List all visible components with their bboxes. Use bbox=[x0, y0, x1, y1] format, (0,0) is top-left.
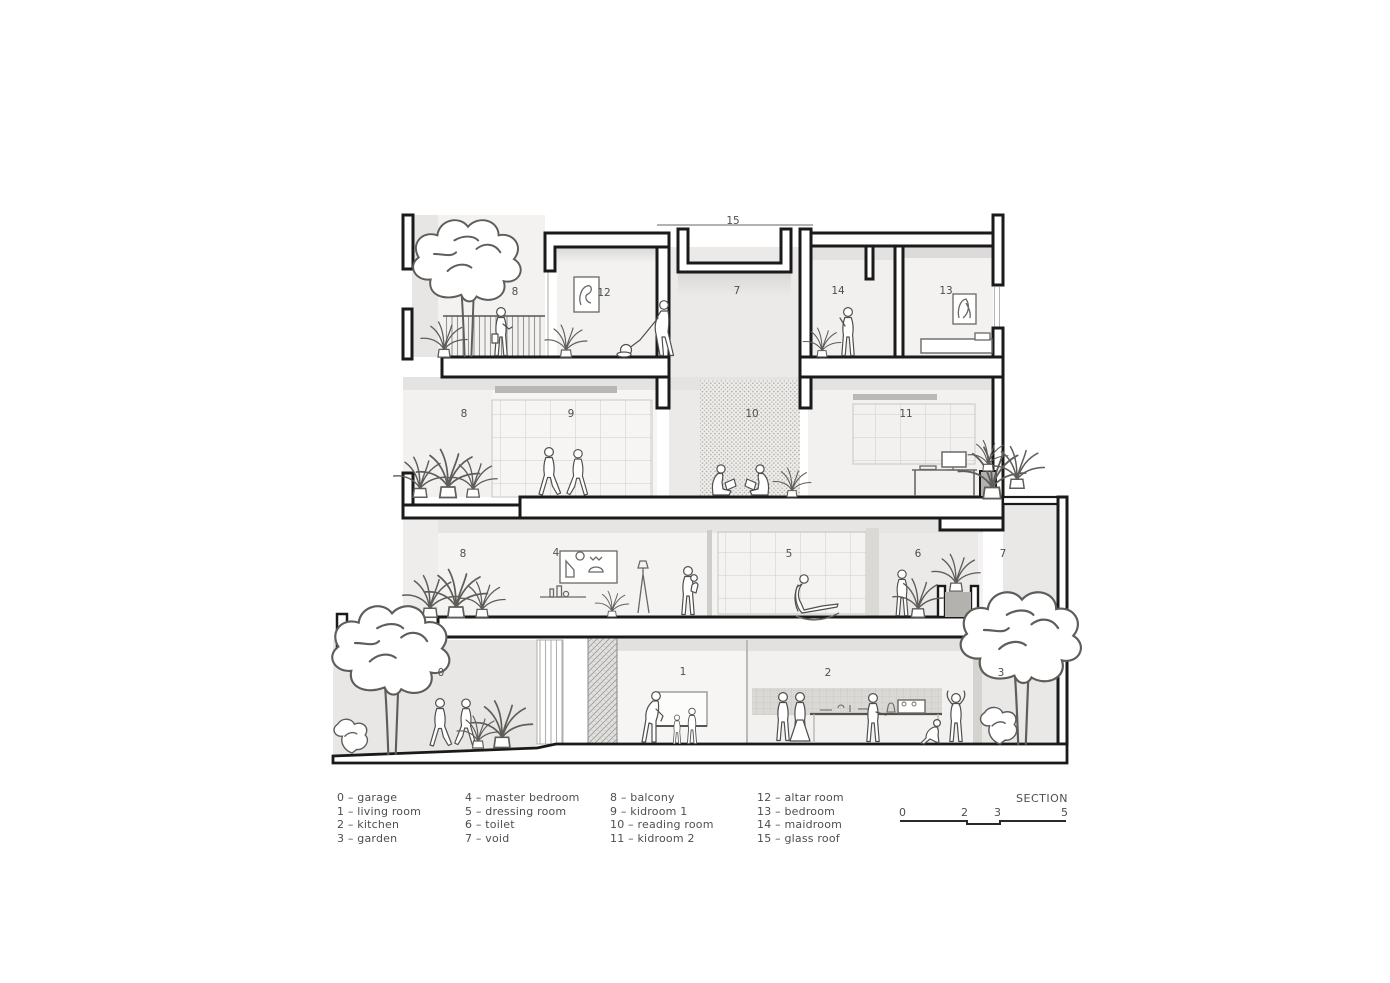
legend-item-void: 7 – void bbox=[465, 832, 580, 846]
floor2-slab-balcony bbox=[403, 505, 520, 518]
scale-bar: SECTION 0 2 3 5 bbox=[898, 792, 1068, 827]
kidroom2-shelf-band bbox=[853, 394, 937, 400]
pillow bbox=[975, 333, 990, 340]
scale-tick-0: 0 bbox=[899, 806, 906, 819]
room-label-bedroom: 13 bbox=[939, 285, 952, 297]
legend-item-kitchen: 2 – kitchen bbox=[337, 818, 421, 832]
legend-item-altar-room: 12 – altar room bbox=[757, 791, 844, 805]
legend-column-4: 12 – altar room 13 – bedroom 14 – maidro… bbox=[757, 791, 844, 845]
floor1-slab bbox=[438, 617, 985, 637]
room-label-balcony-3f: 8 bbox=[512, 286, 519, 298]
room-label-kidroom-2: 11 bbox=[899, 408, 912, 420]
legend-item-dressing-room: 5 – dressing room bbox=[465, 805, 580, 819]
room-label-balcony-2f: 8 bbox=[461, 408, 468, 420]
coffee-machine bbox=[898, 700, 925, 713]
right-wall-f3-lower bbox=[993, 328, 1003, 357]
room-label-garden: 3 bbox=[998, 667, 1005, 679]
void-wall-right bbox=[800, 229, 811, 408]
scale-bar-ticks: 0 2 3 5 bbox=[898, 806, 1068, 819]
room-label-maidroom: 14 bbox=[831, 285, 845, 297]
room-label-garage: 0 bbox=[438, 667, 445, 679]
room-label-balcony-1f: 8 bbox=[460, 548, 467, 560]
kidroom1-shelf-band bbox=[495, 386, 617, 393]
legend-item-master-bedroom: 4 – master bedroom bbox=[465, 791, 580, 805]
legend-item-toilet: 6 – toilet bbox=[465, 818, 580, 832]
legend-item-maidroom: 14 – maidroom bbox=[757, 818, 844, 832]
room-label-master-bedroom: 4 bbox=[553, 547, 560, 559]
maidroom-stub-wall bbox=[866, 246, 873, 279]
parapet-left-f3b bbox=[403, 309, 412, 359]
legend-item-kidroom-1: 9 – kidroom 1 bbox=[610, 805, 714, 819]
room-label-reading-room: 10 bbox=[745, 408, 758, 420]
legend-item-garage: 0 – garage bbox=[337, 791, 421, 805]
section-title: SECTION bbox=[898, 792, 1068, 805]
floor2-slab-main bbox=[520, 497, 1003, 518]
floor3-slab-left bbox=[442, 357, 669, 377]
room-label-dressing-room: 5 bbox=[786, 548, 793, 560]
legend-column-2: 4 – master bedroom 5 – dressing room 6 –… bbox=[465, 791, 580, 845]
room-label-kitchen: 2 bbox=[825, 667, 832, 679]
planter-f1-wall-l bbox=[938, 586, 945, 617]
wall-14-13 bbox=[895, 246, 903, 357]
garage-door bbox=[537, 640, 563, 744]
floor2-slab-step bbox=[940, 518, 1003, 530]
living-room-tv bbox=[655, 692, 707, 726]
legend-item-bedroom: 13 – bedroom bbox=[757, 805, 844, 819]
architectural-section-page: 15 7 8 12 14 13 8 9 10 11 8 4 5 6 7 0 1 … bbox=[0, 0, 1390, 983]
legend-item-balcony: 8 – balcony bbox=[610, 791, 714, 805]
legend-item-glass-roof: 15 – glass roof bbox=[757, 832, 844, 846]
room-label-glass-roof: 15 bbox=[726, 215, 739, 227]
legend-item-living-room: 1 – living room bbox=[337, 805, 421, 819]
room-label-void-top: 7 bbox=[734, 285, 741, 297]
room-label-void-right: 7 bbox=[1000, 548, 1007, 560]
legend-item-reading-room: 10 – reading room bbox=[610, 818, 714, 832]
roof-slab-bedrooms bbox=[811, 233, 997, 246]
floor3-slab-right bbox=[800, 357, 1003, 377]
room-label-altar-room: 12 bbox=[597, 287, 610, 299]
scale-tick-5: 5 bbox=[1061, 806, 1068, 819]
room-label-toilet: 6 bbox=[915, 548, 922, 560]
legend-column-3: 8 – balcony 9 – kidroom 1 10 – reading r… bbox=[610, 791, 714, 845]
scale-bar-line bbox=[898, 819, 1068, 827]
room-label-living-room: 1 bbox=[680, 666, 687, 678]
bedroom-art-frame bbox=[953, 294, 976, 324]
legend-column-1: 0 – garage 1 – living room 2 – kitchen 3… bbox=[337, 791, 421, 845]
right-wall-f3-upper bbox=[993, 215, 1003, 285]
monitor bbox=[942, 452, 966, 467]
hatched-pier bbox=[588, 638, 617, 744]
master-art-frame bbox=[560, 551, 617, 583]
legend-item-garden: 3 – garden bbox=[337, 832, 421, 846]
legend-item-kidroom-2: 11 – kidroom 2 bbox=[610, 832, 714, 846]
scale-tick-2: 2 bbox=[961, 806, 968, 819]
bed bbox=[921, 339, 992, 353]
parapet-left-f3 bbox=[403, 215, 413, 269]
room-label-kidroom-1: 9 bbox=[568, 408, 575, 420]
scale-tick-3: 3 bbox=[994, 806, 1001, 819]
dressing-room-wall bbox=[718, 532, 866, 614]
